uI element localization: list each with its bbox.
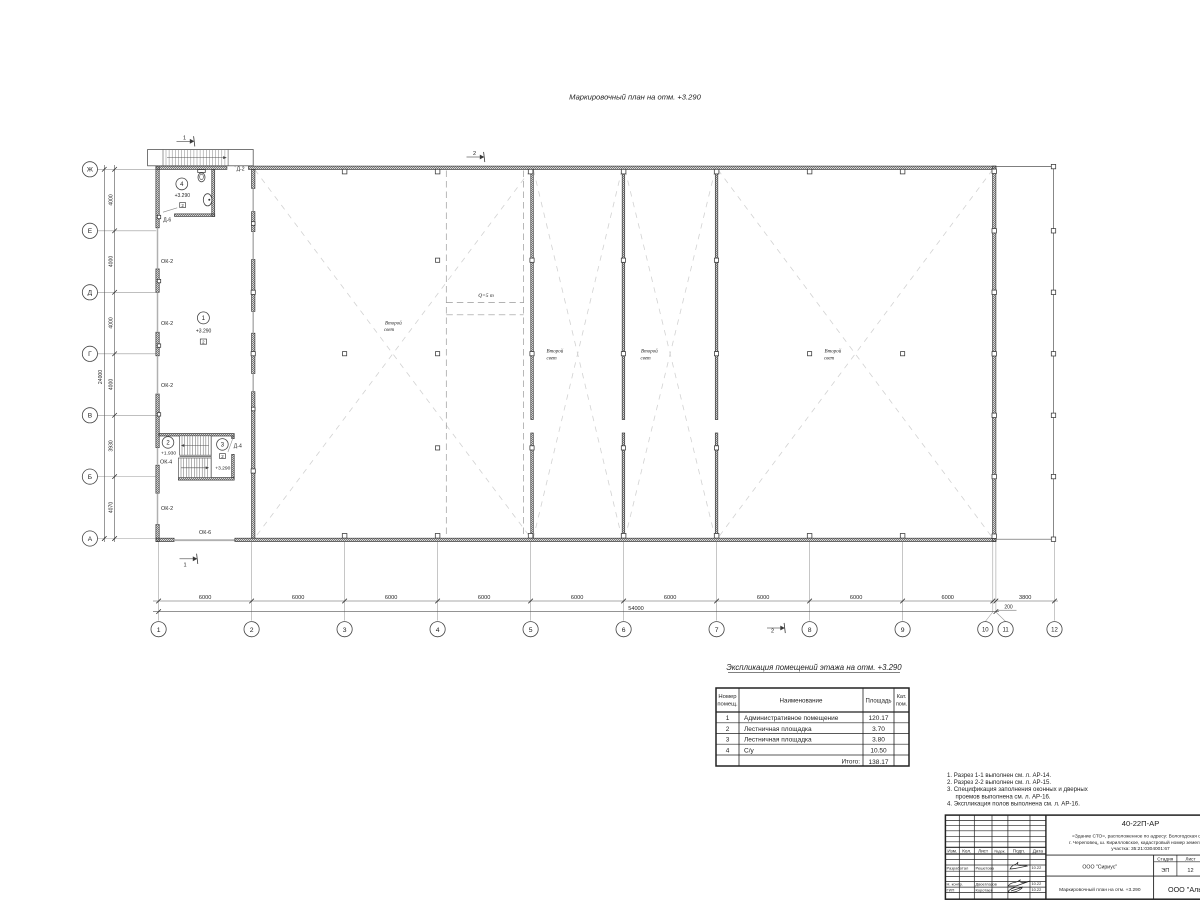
- svg-text:4000: 4000: [108, 194, 114, 205]
- svg-text:Второй: Второй: [385, 321, 402, 327]
- svg-text:Дата: Дата: [1033, 849, 1044, 854]
- svg-text:4000: 4000: [108, 317, 114, 328]
- svg-text:4. Экспликация полов выполнена: 4. Экспликация полов выполнена см. л. АР…: [947, 801, 1080, 808]
- svg-text:3. Спецификация заполнения око: 3. Спецификация заполнения оконных и две…: [947, 786, 1088, 793]
- svg-text:7: 7: [715, 627, 719, 634]
- svg-text:+1.930: +1.930: [161, 451, 176, 457]
- svg-text:3: 3: [343, 627, 347, 634]
- svg-text:свет: свет: [384, 328, 395, 333]
- svg-text:«Здание СТО», расположенное по: «Здание СТО», расположенное по адресу: В…: [1072, 834, 1200, 840]
- svg-text:Д-4: Д-4: [234, 443, 242, 449]
- svg-text:4: 4: [726, 747, 730, 754]
- svg-text:9: 9: [901, 627, 905, 634]
- svg-text:проемов выполнена см. л. АР-16: проемов выполнена см. л. АР-16.: [956, 793, 1051, 800]
- svg-text:120.17: 120.17: [869, 715, 889, 722]
- svg-text:свет: свет: [547, 357, 558, 362]
- svg-text:8: 8: [808, 627, 812, 634]
- svg-text:4000: 4000: [108, 379, 114, 390]
- svg-text:Лестничная площадка: Лестничная площадка: [744, 737, 812, 744]
- svg-text:1: 1: [202, 315, 206, 322]
- svg-text:ОК-6: ОК-6: [199, 530, 211, 536]
- svg-text:10: 10: [982, 628, 989, 634]
- svg-text:№док.: №док.: [994, 849, 1005, 854]
- svg-text:Двоеглазов: Двоеглазов: [976, 882, 997, 887]
- svg-text:6000: 6000: [941, 595, 953, 601]
- svg-text:2. Разрез 2-2 выполнен см. л.: 2. Разрез 2-2 выполнен см. л. АР-15.: [947, 779, 1051, 786]
- svg-text:6000: 6000: [478, 595, 490, 601]
- svg-text:3930: 3930: [108, 440, 114, 451]
- svg-text:ОК-2: ОК-2: [161, 383, 173, 389]
- svg-text:138.17: 138.17: [869, 759, 889, 766]
- svg-text:Н. контр.: Н. контр.: [947, 882, 964, 887]
- svg-text:1: 1: [726, 715, 730, 722]
- svg-text:Кол.: Кол.: [962, 849, 971, 854]
- svg-text:Второй: Второй: [641, 349, 658, 355]
- svg-text:1: 1: [183, 563, 186, 569]
- svg-text:Лист: Лист: [978, 849, 989, 854]
- svg-text:А: А: [88, 536, 93, 543]
- svg-text:6000: 6000: [385, 595, 397, 601]
- svg-text:участка: 35:21:0304001:67: участка: 35:21:0304001:67: [1111, 846, 1170, 852]
- svg-text:ЭП: ЭП: [1161, 868, 1169, 874]
- svg-text:Б: Б: [88, 474, 92, 481]
- svg-text:Е: Е: [88, 228, 93, 235]
- svg-text:6000: 6000: [850, 595, 862, 601]
- svg-text:+3.290: +3.290: [175, 193, 191, 199]
- svg-text:+3.290: +3.290: [215, 466, 230, 472]
- svg-text:6000: 6000: [757, 595, 769, 601]
- svg-text:Лестничная площадка: Лестничная площадка: [744, 726, 812, 733]
- svg-text:ОК-2: ОК-2: [161, 259, 173, 265]
- svg-text:ООО "Альянс": ООО "Альянс": [1168, 885, 1200, 894]
- svg-text:ООО "Сириус": ООО "Сириус": [1082, 865, 1117, 871]
- svg-text:ОК-2: ОК-2: [161, 321, 173, 327]
- svg-text:6000: 6000: [292, 595, 304, 601]
- svg-text:Площадь: Площадь: [865, 699, 891, 705]
- svg-text:4070: 4070: [108, 502, 114, 513]
- svg-text:свет: свет: [824, 357, 835, 362]
- svg-text:ОК-4: ОК-4: [160, 459, 172, 465]
- svg-text:2: 2: [473, 151, 476, 157]
- svg-text:200: 200: [1004, 605, 1013, 611]
- svg-text:Д: Д: [88, 290, 93, 297]
- svg-text:В: В: [88, 413, 93, 420]
- svg-text:6000: 6000: [664, 595, 676, 601]
- svg-text:10.50: 10.50: [870, 747, 887, 754]
- svg-text:Второй: Второй: [547, 349, 564, 355]
- svg-text:С/у: С/у: [744, 747, 755, 754]
- svg-text:4: 4: [436, 627, 440, 634]
- svg-text:свет: свет: [641, 357, 652, 362]
- svg-text:24000: 24000: [98, 370, 104, 384]
- svg-text:5: 5: [529, 627, 533, 634]
- svg-text:3.70: 3.70: [872, 726, 885, 733]
- svg-text:40-22П-АР: 40-22П-АР: [1122, 819, 1160, 828]
- svg-text:2: 2: [771, 628, 774, 634]
- svg-text:54000: 54000: [628, 606, 644, 612]
- svg-text:Подп.: Подп.: [1013, 849, 1025, 854]
- svg-text:1: 1: [157, 627, 161, 634]
- svg-text:1. Разрез 1-1 выполнен см. л.: 1. Разрез 1-1 выполнен см. л. АР-14.: [947, 772, 1051, 779]
- svg-text:4000: 4000: [108, 256, 114, 267]
- svg-text:Итого:: Итого:: [841, 758, 860, 765]
- svg-text:3: 3: [726, 737, 730, 744]
- svg-text:Маркировочный план на отм. +3.: Маркировочный план на отм. +3.290: [569, 93, 701, 102]
- svg-text:6: 6: [622, 627, 626, 634]
- svg-text:Д-6: Д-6: [163, 217, 171, 223]
- svg-text:Г: Г: [88, 351, 92, 358]
- svg-text:пом.: пом.: [896, 701, 908, 707]
- svg-text:Q=5 т: Q=5 т: [478, 293, 494, 299]
- svg-text:Коротаев: Коротаев: [976, 888, 993, 893]
- svg-text:Экспликация помещений этажа на: Экспликация помещений этажа на отм. +3.2…: [726, 663, 902, 672]
- svg-text:3800: 3800: [1019, 595, 1031, 601]
- svg-text:10.22: 10.22: [1032, 887, 1042, 892]
- svg-text:помещ.: помещ.: [717, 701, 738, 707]
- svg-text:Маркировочный план на отм. +3.: Маркировочный план на отм. +3.290: [1059, 886, 1141, 893]
- svg-text:Изм.: Изм.: [947, 849, 957, 854]
- svg-text:2: 2: [726, 726, 730, 733]
- svg-text:10.22: 10.22: [1032, 881, 1042, 886]
- svg-text:Ж: Ж: [87, 167, 93, 174]
- svg-text:Кат.: Кат.: [897, 694, 907, 700]
- svg-text:6000: 6000: [571, 595, 583, 601]
- svg-text:2: 2: [250, 627, 254, 634]
- svg-text:12: 12: [1187, 868, 1193, 874]
- svg-text:Стадия: Стадия: [1157, 856, 1173, 861]
- svg-text:1: 1: [183, 135, 186, 141]
- svg-text:11: 11: [1002, 628, 1009, 634]
- svg-text:Административное помещение: Административное помещение: [744, 715, 839, 722]
- svg-text:г. Череповец, ш. Кирилловское,: г. Череповец, ш. Кирилловское, кадастров…: [1069, 839, 1200, 846]
- svg-text:6000: 6000: [199, 595, 211, 601]
- svg-text:Лист: Лист: [1185, 856, 1196, 861]
- svg-text:Номер: Номер: [718, 694, 737, 700]
- svg-text:Решетова: Решетова: [976, 865, 995, 870]
- svg-text:Д-2: Д-2: [237, 167, 245, 173]
- svg-text:+3.290: +3.290: [196, 329, 212, 335]
- svg-text:Второй: Второй: [825, 349, 842, 355]
- svg-text:10.22: 10.22: [1032, 865, 1042, 870]
- svg-text:ГИП: ГИП: [947, 888, 955, 893]
- svg-text:12: 12: [1051, 628, 1058, 634]
- svg-text:Разработал: Разработал: [947, 865, 969, 870]
- svg-text:ОК-2: ОК-2: [161, 506, 173, 512]
- svg-text:3.80: 3.80: [872, 737, 885, 744]
- svg-text:Наименование: Наименование: [780, 698, 823, 705]
